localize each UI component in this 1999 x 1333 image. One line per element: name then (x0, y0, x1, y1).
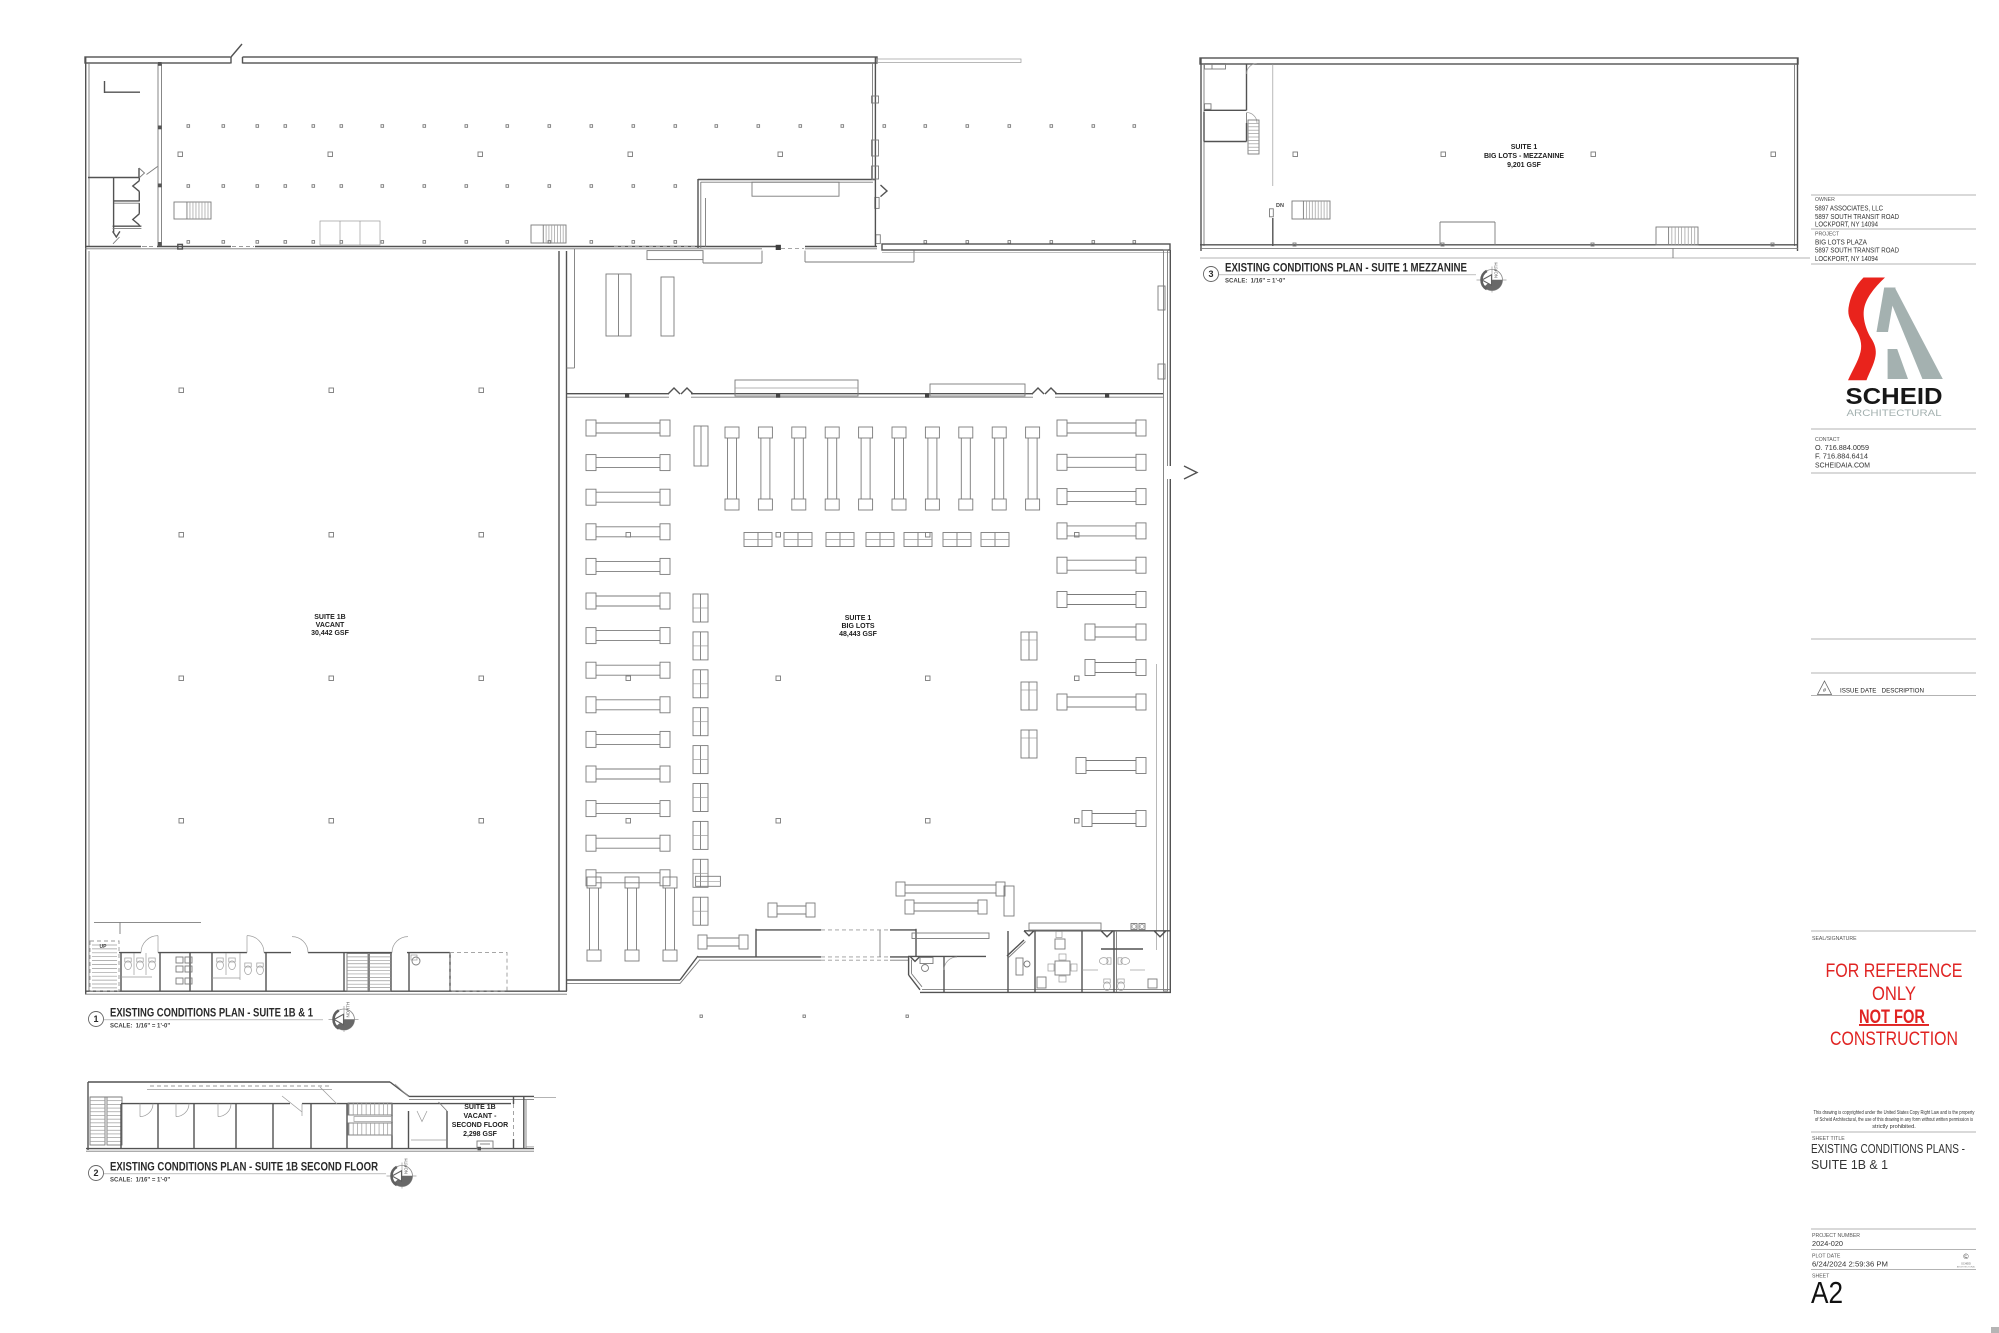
svg-text:DN: DN (1276, 203, 1284, 209)
svg-text:LOCKPORT, NY 14094: LOCKPORT, NY 14094 (1815, 220, 1878, 229)
svg-text:SUITE 1: SUITE 1 (1511, 144, 1538, 151)
svg-text:CONSTRUCTION: CONSTRUCTION (1830, 1028, 1958, 1050)
svg-text:SCALE: 1/16" = 1’-0": SCALE: 1/16" = 1’-0" (110, 1178, 170, 1184)
svg-text:SCALE: 1/16" = 1’-0": SCALE: 1/16" = 1’-0" (1225, 279, 1285, 285)
svg-text:6/24/2024 2:59:36 PM: 6/24/2024 2:59:36 PM (1812, 1260, 1888, 1269)
svg-text:NORTH: NORTH (346, 1002, 351, 1018)
svg-text:2: 2 (93, 1168, 98, 1178)
svg-text:BIG LOTS - MEZZANINE: BIG LOTS - MEZZANINE (1484, 153, 1564, 160)
svg-text:1: 1 (93, 1014, 98, 1024)
svg-text:This drawing is copyrighted un: This drawing is copyrighted under the Un… (1814, 1110, 1975, 1116)
svg-text:©: © (1963, 1253, 1969, 1261)
svg-text:O. 716.884.0059: O. 716.884.0059 (1815, 443, 1869, 452)
svg-text:UP: UP (100, 944, 108, 950)
svg-text:SCHEID: SCHEID (1961, 1262, 1971, 1266)
svg-text:SUITE 1: SUITE 1 (845, 615, 872, 622)
svg-text:#: # (1823, 688, 1827, 694)
svg-text:EXISTING CONDITIONS PLAN - SUI: EXISTING CONDITIONS PLAN - SUITE 1B & 1 (110, 1006, 313, 1020)
svg-text:LOCKPORT, NY 14094: LOCKPORT, NY 14094 (1815, 254, 1878, 263)
svg-text:2024-020: 2024-020 (1812, 1239, 1843, 1248)
svg-text:SCALE: 1/16" = 1’-0": SCALE: 1/16" = 1’-0" (110, 1024, 170, 1030)
svg-text:SUITE 1B: SUITE 1B (464, 1104, 496, 1111)
svg-text:SEAL/SIGNATURE: SEAL/SIGNATURE (1812, 936, 1857, 942)
svg-text:SECOND FLOOR: SECOND FLOOR (452, 1122, 508, 1129)
svg-text:F. 716.884.6414: F. 716.884.6414 (1815, 452, 1868, 461)
svg-text:OWNER: OWNER (1815, 197, 1835, 203)
svg-text:EXISTING CONDITIONS PLANS -: EXISTING CONDITIONS PLANS - (1811, 1141, 1965, 1156)
svg-text:30,442 GSF: 30,442 GSF (311, 630, 349, 637)
svg-text:VACANT: VACANT (316, 622, 345, 629)
svg-text:48,443 GSF: 48,443 GSF (839, 631, 877, 638)
svg-text:ARCHITECTURAL: ARCHITECTURAL (1957, 1265, 1976, 1268)
svg-text:9,201 GSF: 9,201 GSF (1507, 162, 1542, 169)
svg-text:BIG LOTS: BIG LOTS (841, 623, 874, 630)
svg-text:VACANT -: VACANT - (464, 1113, 498, 1120)
svg-text:SCHEIDAIA.COM: SCHEIDAIA.COM (1815, 460, 1870, 469)
svg-text:strictly prohibited.: strictly prohibited. (1872, 1124, 1916, 1130)
svg-text:of Scheid Architectural, the u: of Scheid Architectural, the use of this… (1815, 1117, 1973, 1123)
svg-text:ARCHITECTURAL: ARCHITECTURAL (1847, 408, 1942, 419)
svg-text:2,298 GSF: 2,298 GSF (463, 1131, 498, 1138)
svg-text:FOR REFERENCE: FOR REFERENCE (1826, 960, 1963, 982)
svg-text:NOT FOR: NOT FOR (1859, 1006, 1929, 1028)
svg-text:EXISTING CONDITIONS PLAN - SUI: EXISTING CONDITIONS PLAN - SUITE 1 MEZZA… (1225, 261, 1467, 275)
svg-text:NORTH: NORTH (1494, 262, 1499, 278)
svg-text:NORTH: NORTH (404, 1158, 409, 1174)
svg-text:SUITE 1B & 1: SUITE 1B & 1 (1811, 1157, 1888, 1172)
svg-text:ONLY: ONLY (1872, 983, 1916, 1005)
svg-text:EXISTING CONDITIONS PLAN - SUI: EXISTING CONDITIONS PLAN - SUITE 1B SECO… (110, 1160, 378, 1174)
svg-text:SCHEID: SCHEID (1846, 383, 1943, 409)
svg-text:ISSUE DATE DESCRIPTION: ISSUE DATE DESCRIPTION (1840, 688, 1924, 695)
svg-text:3: 3 (1208, 269, 1213, 279)
svg-text:SUITE 1B: SUITE 1B (314, 614, 346, 621)
svg-text:A2: A2 (1811, 1275, 1843, 1310)
